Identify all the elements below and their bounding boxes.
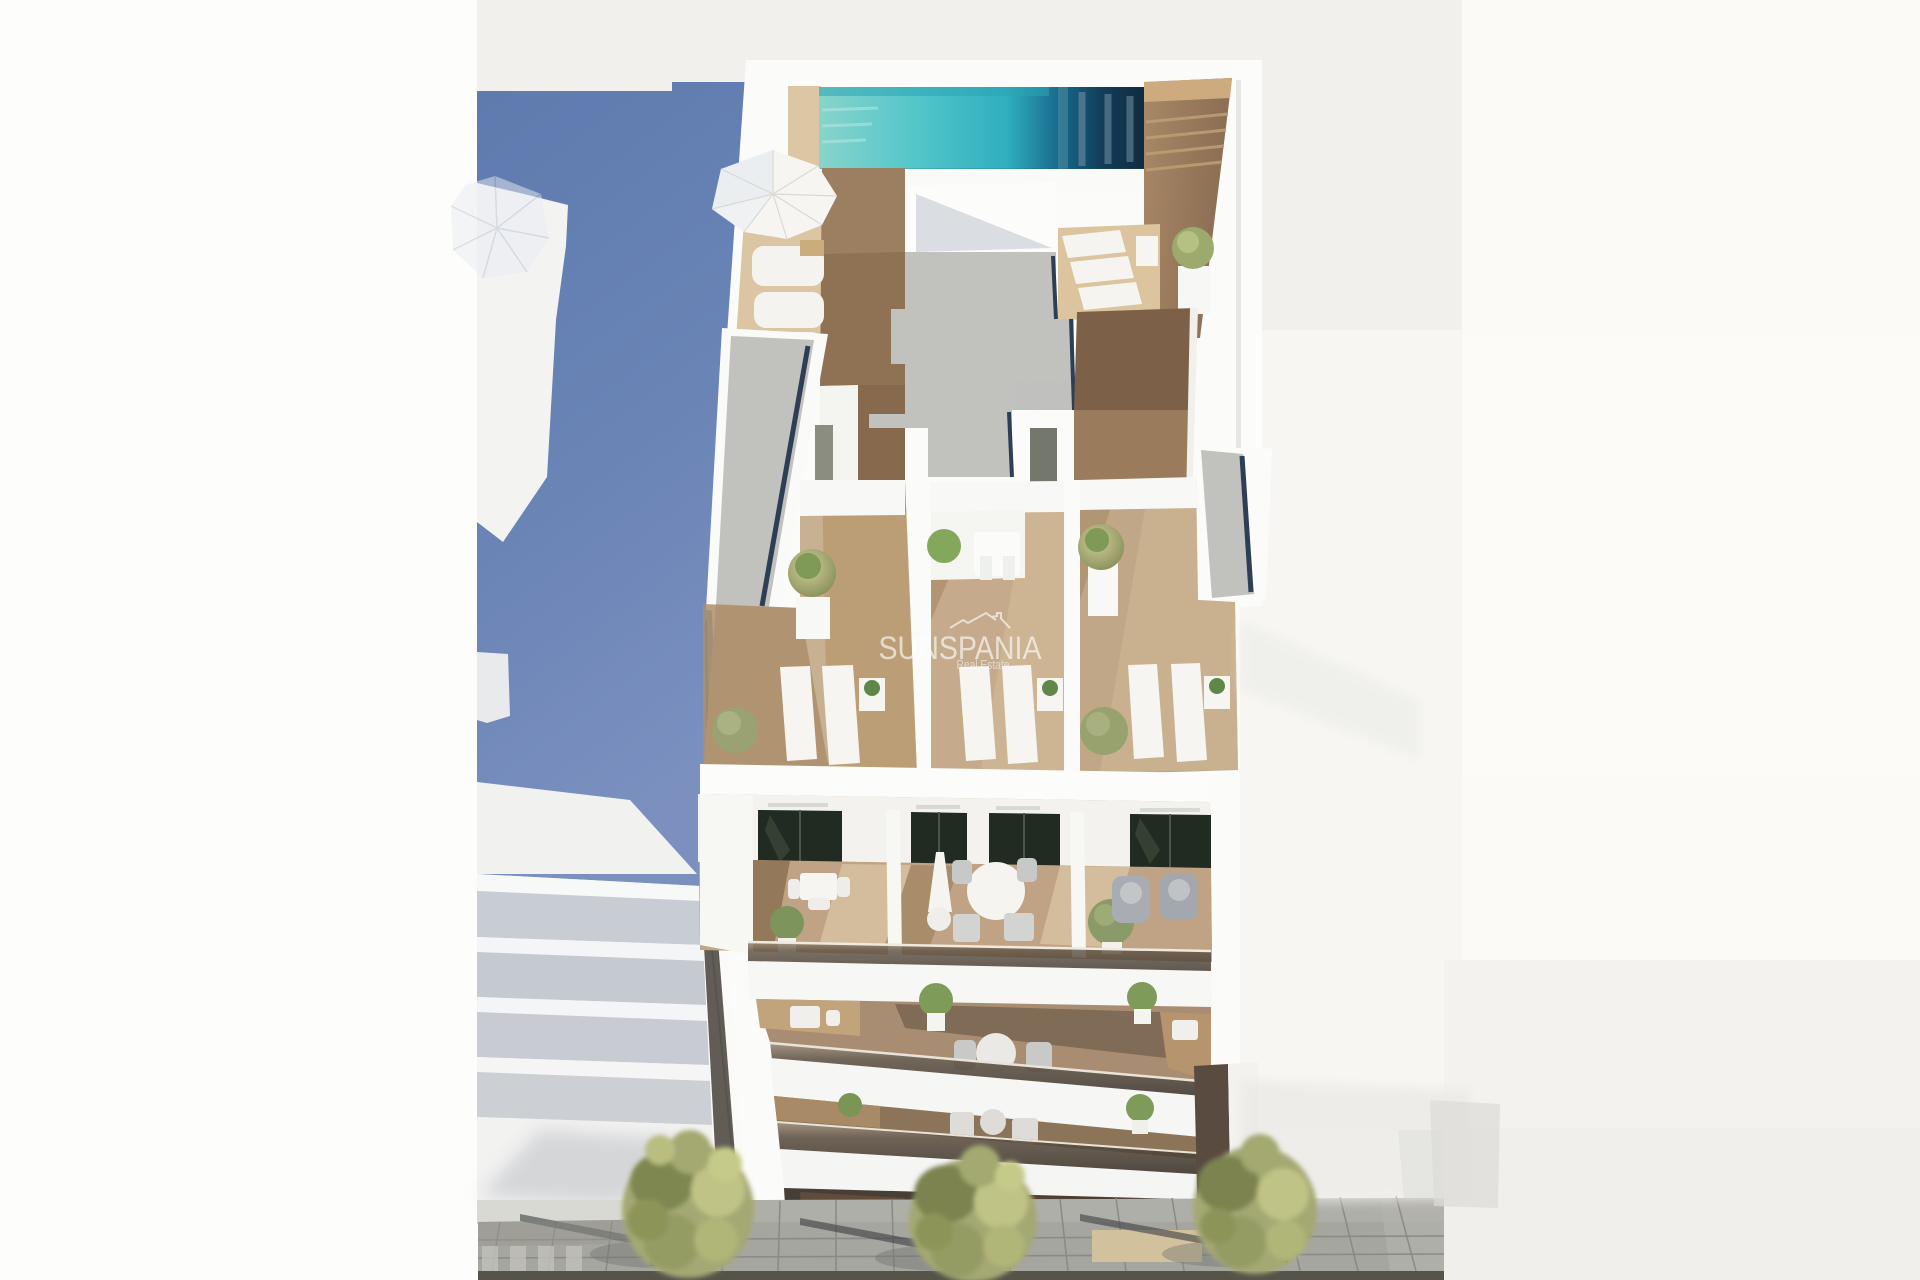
svg-text:Real Estate: Real Estate bbox=[957, 657, 1010, 672]
